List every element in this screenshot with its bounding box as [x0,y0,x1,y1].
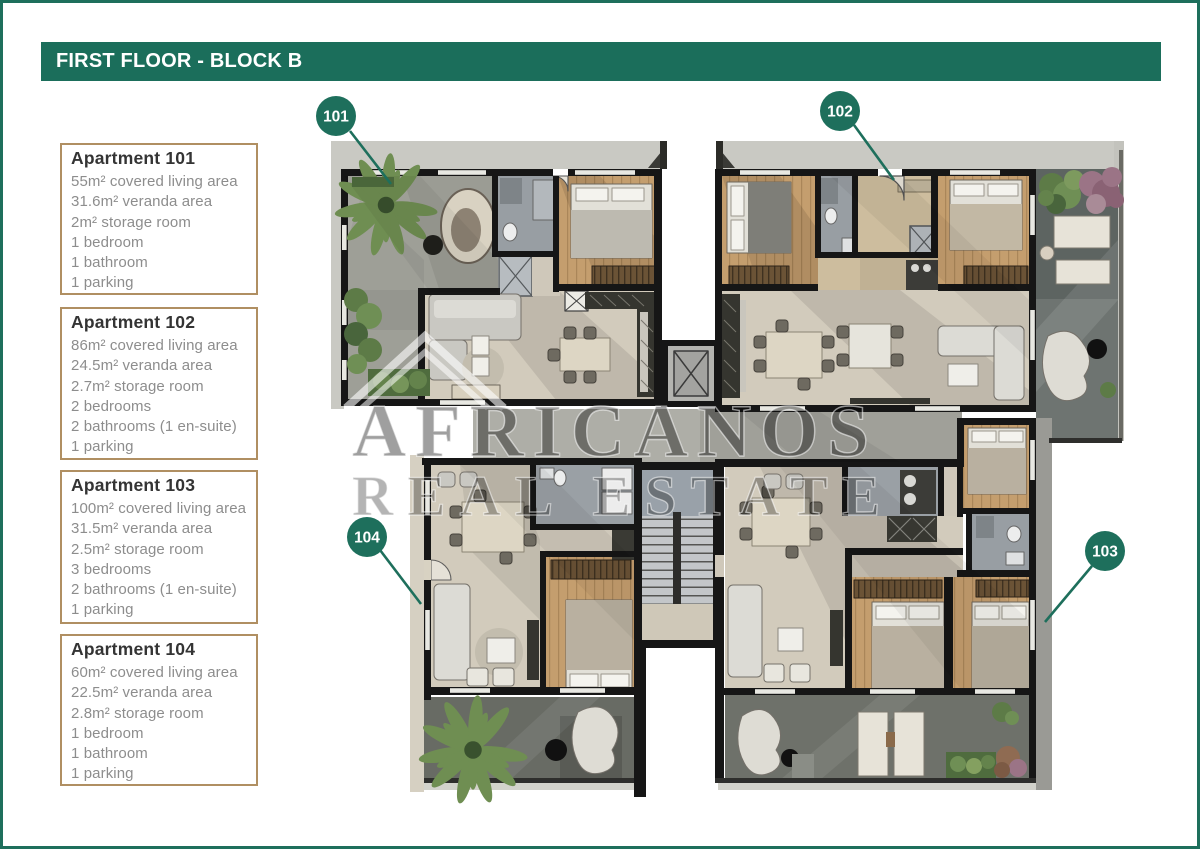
svg-text:103: 103 [1092,544,1118,561]
svg-text:101: 101 [323,109,349,126]
svg-text:REAL ESTATE: REAL ESTATE [352,465,880,528]
svg-text:104: 104 [354,530,380,547]
svg-text:102: 102 [827,104,853,121]
svg-text:AFRICANOS: AFRICANOS [352,390,869,473]
